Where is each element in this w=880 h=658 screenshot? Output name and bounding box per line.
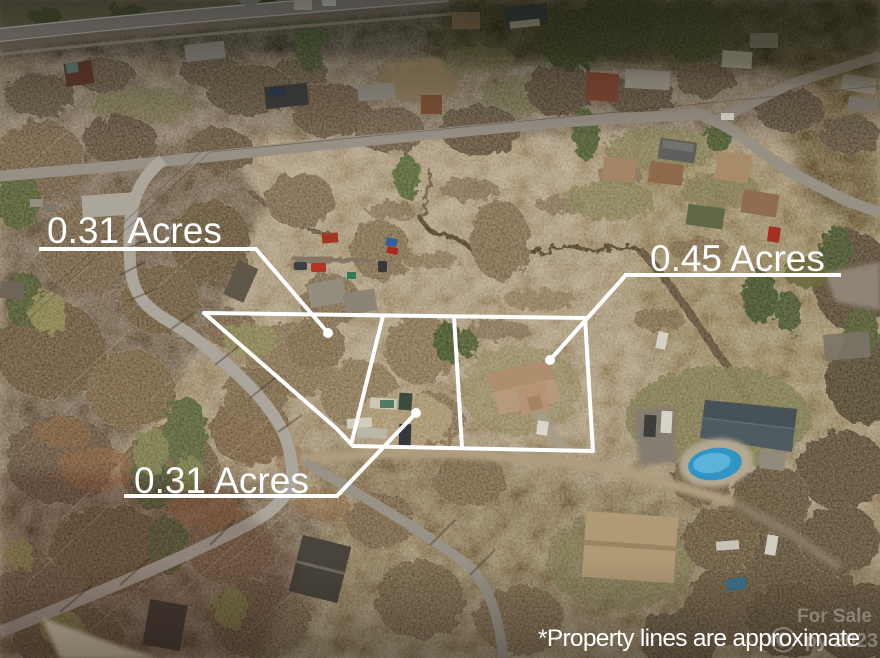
svg-text:0.31 Acres: 0.31 Acres — [47, 210, 222, 251]
svg-text:*Property lines are approximat: *Property lines are approximate — [538, 625, 860, 652]
svg-text:0.31 Acres: 0.31 Acres — [134, 460, 309, 501]
svg-text:For Sale: For Sale — [797, 606, 872, 627]
svg-text:0.45 Acres: 0.45 Acres — [650, 238, 825, 279]
